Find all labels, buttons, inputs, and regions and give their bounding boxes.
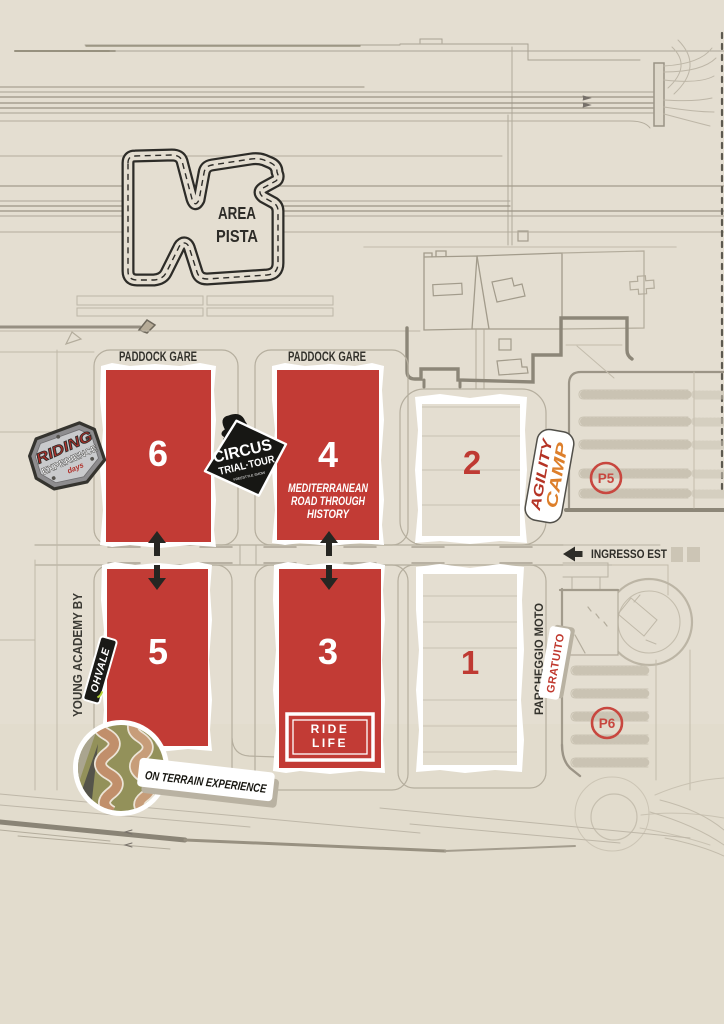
svg-text:3: 3 bbox=[318, 631, 338, 672]
svg-text:RIDE: RIDE bbox=[311, 722, 350, 736]
svg-text:INGRESSO EST: INGRESSO EST bbox=[591, 549, 667, 561]
svg-text:P5: P5 bbox=[598, 471, 615, 486]
svg-text:PARCHEGGIO MOTO: PARCHEGGIO MOTO bbox=[534, 603, 546, 715]
svg-text:PADDOCK GARE: PADDOCK GARE bbox=[119, 349, 197, 364]
svg-text:5: 5 bbox=[148, 631, 168, 672]
svg-text:6: 6 bbox=[148, 433, 168, 474]
svg-text:AREA: AREA bbox=[218, 203, 256, 223]
svg-text:1: 1 bbox=[461, 644, 479, 681]
svg-text:2: 2 bbox=[463, 444, 481, 481]
svg-text:LIFE: LIFE bbox=[312, 736, 348, 750]
svg-text:MEDITERRANEAN: MEDITERRANEAN bbox=[288, 483, 369, 495]
svg-text:ROAD THROUGH: ROAD THROUGH bbox=[291, 496, 366, 508]
svg-text:4: 4 bbox=[318, 434, 338, 475]
svg-text:PISTA: PISTA bbox=[216, 226, 258, 246]
svg-text:P6: P6 bbox=[599, 716, 616, 731]
svg-text:HISTORY: HISTORY bbox=[307, 509, 350, 521]
svg-text:PADDOCK GARE: PADDOCK GARE bbox=[288, 349, 366, 364]
